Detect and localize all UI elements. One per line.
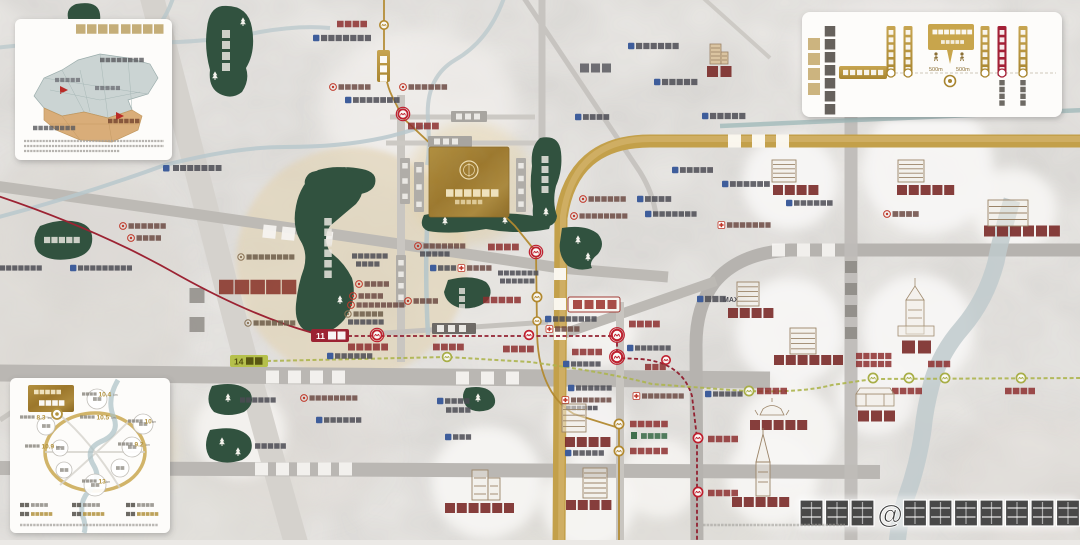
svg-text:km: km — [56, 445, 61, 449]
svg-text:500m: 500m — [956, 67, 970, 73]
svg-text:km: km — [113, 393, 118, 397]
svg-text:@: @ — [878, 499, 903, 529]
svg-text:14: 14 — [234, 357, 244, 367]
svg-text:km: km — [48, 416, 53, 420]
svg-text:10.9: 10.9 — [42, 443, 55, 450]
svg-text:10.4: 10.4 — [99, 391, 112, 398]
svg-text:10.5: 10.5 — [97, 414, 110, 421]
svg-text:MAX: MAX — [723, 297, 739, 304]
svg-text:km: km — [152, 420, 157, 424]
svg-text:km: km — [146, 443, 151, 447]
svg-text:km: km — [106, 480, 111, 484]
svg-text:km: km — [111, 416, 116, 420]
svg-text:9.2: 9.2 — [135, 441, 144, 448]
svg-text:500m: 500m — [929, 67, 943, 73]
svg-text:8.3: 8.3 — [37, 414, 46, 421]
svg-text:11: 11 — [316, 331, 325, 341]
